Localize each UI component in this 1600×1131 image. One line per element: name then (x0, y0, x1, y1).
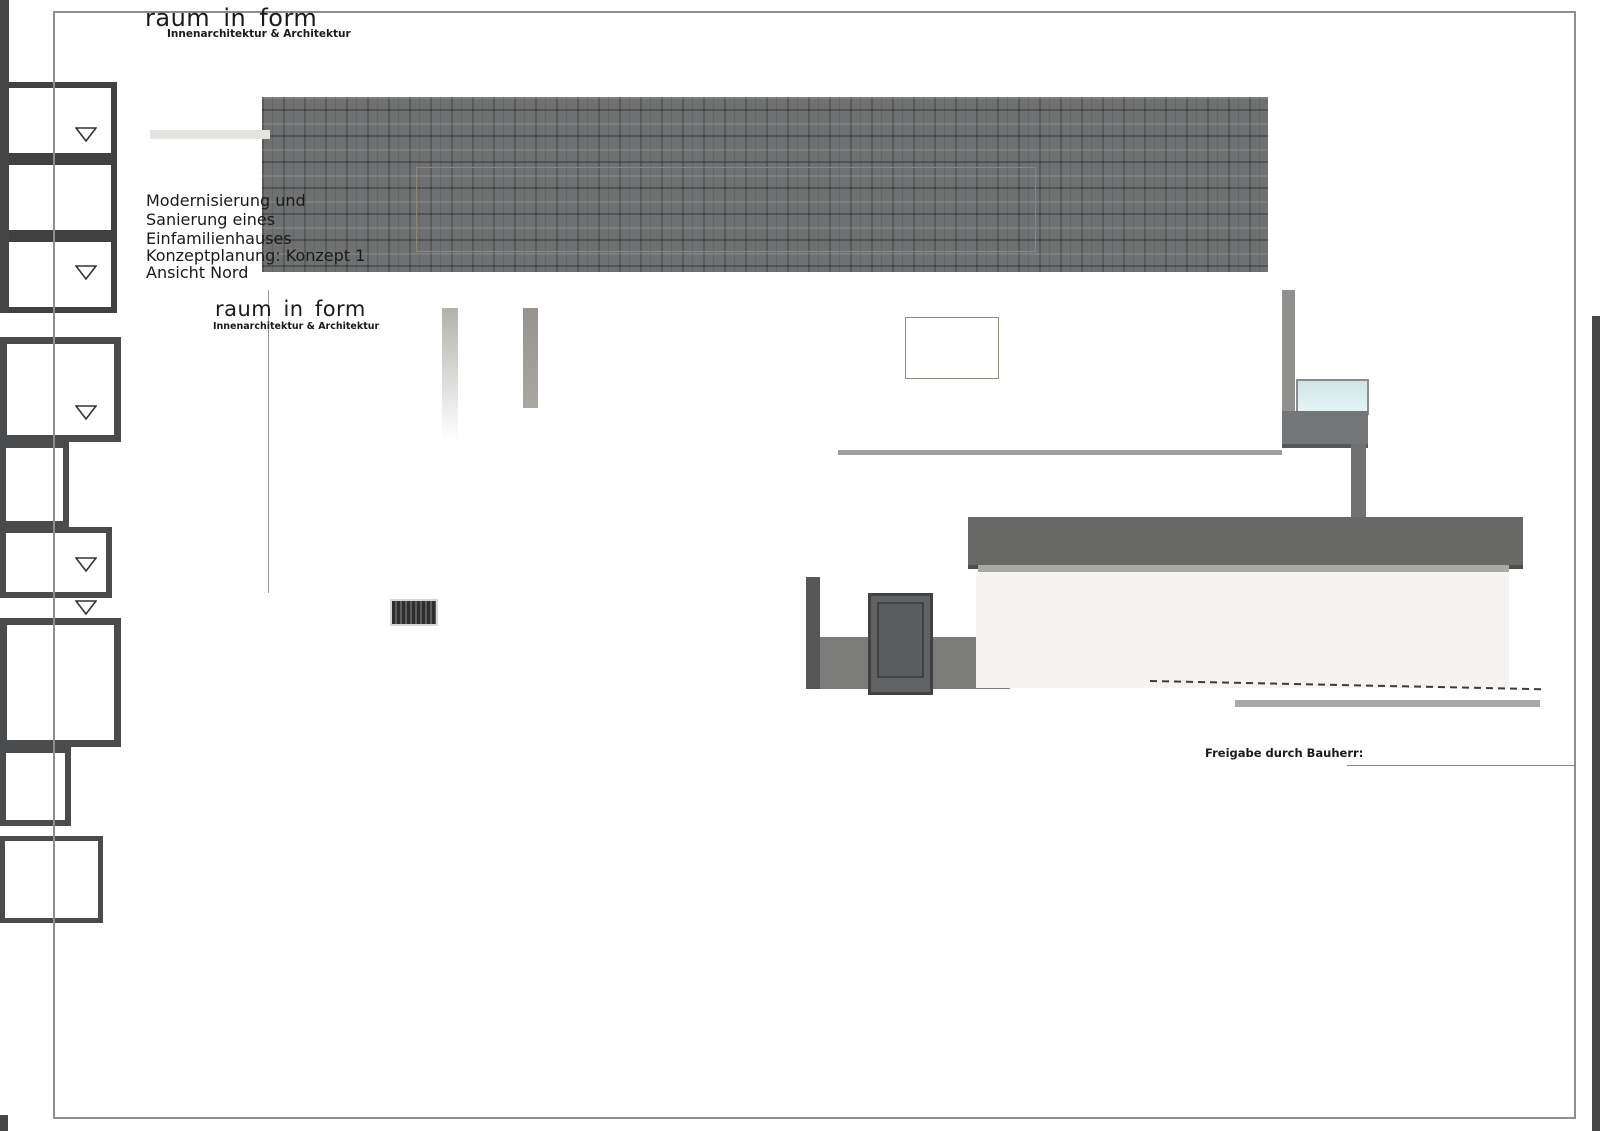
level-triangle-icon (75, 600, 97, 615)
level-triangle-icon (75, 127, 97, 142)
window-sill (0, 826, 78, 836)
dormer-window (0, 159, 117, 236)
dormer-window (0, 236, 117, 313)
wood-panel (905, 317, 999, 379)
wall-left-section (268, 290, 443, 593)
window-sill (0, 313, 121, 321)
frame-left (53, 11, 55, 1119)
balcony-beam (1282, 411, 1368, 448)
window-sill (0, 598, 78, 608)
window-og-tall (0, 337, 121, 442)
corner-shadow (523, 308, 538, 408)
garage-door (0, 934, 130, 1049)
eaves-band (258, 272, 1274, 290)
projekt-value: Modernisierung und Sanierung eines Einfa… (146, 191, 364, 248)
logo-word: form (315, 297, 366, 321)
logo-raum-in-form-small: raum in form (215, 297, 366, 321)
frame-right (1574, 11, 1576, 1119)
approval-label: Freigabe durch Bauherr: (1205, 746, 1363, 760)
logo-word-accent: in (283, 297, 303, 321)
logo-subtitle-small: Innenarchitektur & Architektur (213, 321, 379, 332)
fold-mark-bottom (0, 69, 1600, 82)
green-roof-grass (968, 500, 1515, 518)
window-sill (0, 608, 118, 618)
window-sill (0, 329, 121, 337)
dormer-wood-cladding (416, 167, 1036, 252)
garage-slab (968, 517, 1523, 569)
approval-signature-line[interactable] (1347, 765, 1574, 766)
fold-mark-bottom (0, 56, 1600, 69)
screen-edge-right (1592, 316, 1600, 1131)
balcony-glass-railing (1296, 379, 1369, 415)
floor-slab-line (838, 450, 1282, 455)
logo-word: raum (215, 297, 272, 321)
garage-slab-underside (978, 565, 1509, 572)
frame-bottom (53, 1117, 1576, 1119)
garage-front (976, 572, 1509, 688)
level-triangle-icon (75, 265, 97, 280)
screen-edge-left (0, 0, 9, 313)
garden-gate (868, 593, 933, 695)
logo-subtitle: Innenarchitektur & Architektur (167, 28, 351, 40)
roof-ridge-cap (262, 97, 1268, 109)
dormer-window (0, 82, 117, 159)
window-sill (0, 923, 112, 934)
eaves-shadow (268, 290, 1282, 308)
drawing-sheet: UK First + 8,98 OK DG + 6,36 OK OG + 3,6… (0, 0, 1600, 1131)
redacted-smudge (150, 130, 270, 139)
level-triangle-icon (75, 557, 97, 572)
window-eg-left (0, 836, 103, 923)
floor-band (442, 408, 838, 440)
dormer-fascia (405, 133, 1050, 167)
window-og-single (0, 442, 69, 527)
wall-pillar (806, 577, 820, 689)
level-triangle-icon (75, 405, 97, 420)
planinhalt-value-line2: Ansicht Nord (146, 263, 248, 282)
window-sill (0, 321, 121, 329)
ground-ramp-right (1235, 700, 1540, 707)
screen-edge-bottom-left (0, 1115, 8, 1131)
gate-panel (877, 602, 924, 678)
window-eg-right (0, 747, 71, 826)
